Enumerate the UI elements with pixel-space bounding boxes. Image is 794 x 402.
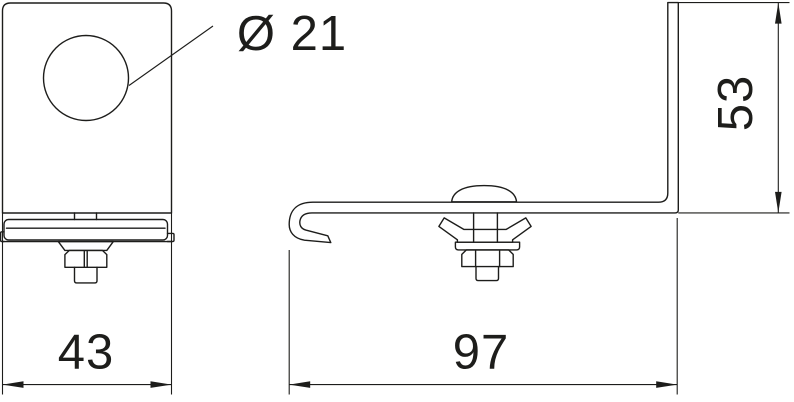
side-length-label: 97 [453,326,510,380]
hole-circle [44,36,129,121]
side-height-arrow-top [775,3,782,24]
dimension-hole-diameter: Ø 21 [129,7,347,86]
front-shank-lines [75,213,97,220]
side-height-label: 53 [709,75,763,132]
side-hex-nut-facets [476,251,500,267]
hole-diameter-label: Ø 21 [237,7,347,61]
side-profile-outline [289,3,678,243]
front-view [1,3,174,283]
side-serrated-washer [439,218,531,242]
side-height-arrow-bottom [775,192,782,213]
side-length-arrow-left [289,381,310,388]
side-shank-lines [474,213,498,242]
side-screw-head [452,186,517,202]
dimension-side-height: 53 [678,3,789,213]
front-plate-outline [3,3,172,213]
front-width-arrow-left [3,381,24,388]
side-view [289,3,678,281]
side-bolt-end [476,267,499,281]
drawing-canvas: Ø 21 43 97 53 [0,0,794,402]
front-collar [58,242,113,251]
front-washer-body [4,220,168,241]
front-hex-nut [65,250,107,267]
side-collar [455,242,519,250]
front-washer-right-ear [168,233,175,241]
front-width-arrow-right [151,381,172,388]
front-bolt-end [75,267,98,283]
dimension-side-length: 97 [289,218,677,395]
bracket-drawing-svg: Ø 21 43 97 53 [0,0,794,402]
side-length-arrow-right [656,381,677,388]
front-hex-nut-facets [84,251,87,267]
front-width-label: 43 [58,326,115,380]
side-hex-nut [462,250,513,267]
